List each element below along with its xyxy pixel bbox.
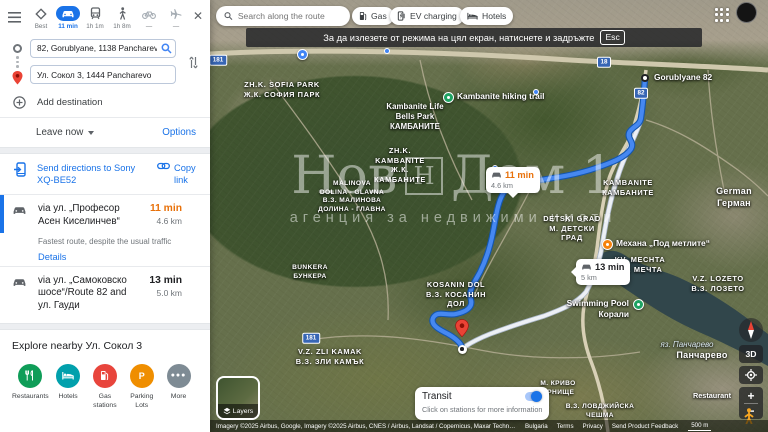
driving-time-label: 11 min xyxy=(58,23,78,30)
search-icon[interactable] xyxy=(161,41,172,59)
travel-mode-bar: Best 11 min 1h 1m 1h 8m — xyxy=(0,0,210,30)
send-to-phone-icon xyxy=(13,162,27,177)
poi-blue[interactable] xyxy=(297,49,308,60)
options-button[interactable]: Options xyxy=(162,127,196,138)
chevron-down-icon xyxy=(88,131,94,135)
my-location-button[interactable] xyxy=(739,366,763,384)
category-hotels[interactable]: Hotels xyxy=(51,364,86,411)
car-icon xyxy=(581,263,592,271)
walking-time-label: 1h 8m xyxy=(113,23,131,30)
route-time-0: 11 min xyxy=(142,203,182,214)
terms-link[interactable]: Terms xyxy=(557,423,574,430)
category-more[interactable]: ●●● More xyxy=(161,364,196,411)
bed-icon xyxy=(56,364,80,388)
transit-stop xyxy=(533,89,539,95)
gas-pump-icon xyxy=(93,364,117,388)
origin-dot-icon xyxy=(13,44,22,53)
transit-stop xyxy=(384,48,390,54)
copy-link-button[interactable]: Copy link xyxy=(157,162,200,186)
swap-endpoints-icon[interactable] xyxy=(189,56,198,74)
compass-needle-icon xyxy=(745,321,757,339)
ev-charging-filter-chip[interactable]: EV charging xyxy=(390,7,464,25)
walk-icon xyxy=(118,6,127,21)
destination-pin-icon xyxy=(12,71,23,85)
route-badge-time-1: 13 min xyxy=(595,262,624,272)
category-restaurants[interactable]: Restaurants xyxy=(12,364,49,411)
endpoints-rail xyxy=(12,42,24,90)
category-label: Restaurants xyxy=(12,393,49,402)
car-icon xyxy=(0,203,38,228)
chip-label: Hotels xyxy=(482,11,506,21)
transit-time-label: 1h 1m xyxy=(86,23,104,30)
search-icon xyxy=(224,11,233,21)
category-gas-stations[interactable]: Gas stations xyxy=(87,364,122,411)
category-label: Gas stations xyxy=(87,393,122,411)
route-via-label: via ул. „Професор Асен Киселинчев“ xyxy=(38,203,142,228)
route-endpoints xyxy=(0,30,210,90)
category-label: More xyxy=(171,393,187,402)
category-label: Hotels xyxy=(58,393,77,402)
route-via-label: via ул. „Самоковско шосе“/Route 82 and у… xyxy=(38,275,142,313)
gas-pump-icon xyxy=(359,11,367,21)
map-vector-layer xyxy=(210,0,768,432)
cycling-time-label: — xyxy=(146,23,152,30)
tab-walking-mode[interactable]: 1h 8m xyxy=(109,6,135,30)
destination-pin[interactable] xyxy=(455,319,469,343)
map-attribution-bar: Imagery ©2025 Airbus, Google, Imagery ©2… xyxy=(210,420,768,432)
bed-icon xyxy=(467,12,478,20)
google-apps-icon[interactable] xyxy=(715,8,729,22)
destination-input[interactable] xyxy=(30,65,176,84)
search-along-route-input[interactable] xyxy=(238,11,342,21)
transit-card: Transit Click on stations for more infor… xyxy=(415,387,549,420)
more-dots-icon: ●●● xyxy=(167,364,191,388)
toast-text: За да излезете от режима на цял екран, н… xyxy=(323,33,594,43)
layers-button[interactable]: Layers xyxy=(216,376,260,420)
route-badge-distance: 4.6 km xyxy=(491,181,534,190)
departure-options-row: Leave now Options xyxy=(0,118,210,147)
tab-cycling-mode[interactable]: — xyxy=(136,6,162,30)
scale-bar: 500 m xyxy=(688,422,711,431)
best-mode-icon xyxy=(35,6,47,21)
leave-now-dropdown[interactable]: Leave now xyxy=(36,127,94,138)
plane-icon xyxy=(170,6,182,21)
ring-road xyxy=(210,51,768,70)
route-option-2[interactable]: via ул. „Самоковско шосе“/Route 82 and у… xyxy=(0,267,210,323)
selected-route-badge[interactable]: 11 min 4.6 km xyxy=(486,167,540,193)
add-destination-button[interactable]: Add destination xyxy=(0,90,210,117)
best-mode-label: Best xyxy=(35,23,48,30)
section-divider xyxy=(0,323,210,330)
car-icon xyxy=(56,6,80,21)
link-icon xyxy=(157,162,170,170)
send-directions-row: Send directions to Sony XQ-BE52 Copy lin… xyxy=(0,154,210,194)
route-dots-icon xyxy=(16,56,24,68)
road-shield: 181 xyxy=(302,333,320,344)
parking-icon: P xyxy=(130,364,154,388)
3d-toggle-button[interactable]: 3D xyxy=(739,345,763,363)
primary-route-path[interactable] xyxy=(432,78,645,347)
origin-input[interactable] xyxy=(30,39,176,58)
zoom-in-button[interactable]: + xyxy=(747,389,754,403)
hamburger-menu-icon[interactable] xyxy=(8,10,21,28)
car-icon xyxy=(0,275,38,313)
category-parking[interactable]: P Parking Lots xyxy=(124,364,159,411)
tab-flight-mode[interactable]: — xyxy=(163,6,189,30)
imagery-credits: Imagery ©2025 Airbus, Google, Imagery ©2… xyxy=(216,423,516,430)
account-avatar[interactable] xyxy=(736,2,757,23)
route-details-link[interactable]: Details xyxy=(38,252,210,262)
map-canvas[interactable]: Нов Н Дом 1 агенция за недвижими имоти Z… xyxy=(210,0,768,432)
transit-toggle[interactable] xyxy=(525,392,542,401)
road-shield: 82 xyxy=(634,88,648,99)
category-buttons: Restaurants Hotels Gas stations P Parkin… xyxy=(12,364,198,411)
esc-key: Esc xyxy=(600,30,624,45)
poi-hiking-trail[interactable] xyxy=(443,92,454,103)
flight-time-label: — xyxy=(173,23,179,30)
add-destination-label: Add destination xyxy=(37,97,103,108)
route-start-marker xyxy=(641,74,649,82)
directions-panel: Best 11 min 1h 1m 1h 8m — xyxy=(0,0,210,432)
bicycle-icon xyxy=(142,6,156,21)
fork-knife-icon xyxy=(18,364,42,388)
route-note: Fastest route, despite the usual traffic xyxy=(38,237,210,246)
chip-label: EV charging xyxy=(410,11,457,21)
target-icon xyxy=(745,369,757,381)
fullscreen-exit-toast: За да излезете от режима на цял екран, н… xyxy=(246,28,702,47)
google-maps-directions-app: Best 11 min 1h 1m 1h 8m — xyxy=(0,0,768,432)
alternate-route-badge[interactable]: 13 min 5 km xyxy=(576,259,630,285)
chip-label: Gas xyxy=(371,11,387,21)
search-along-route[interactable] xyxy=(216,6,350,26)
explore-nearby-section: Explore nearby Ул. Сокол 3 Restaurants H… xyxy=(0,330,210,411)
plus-circle-icon xyxy=(13,96,26,109)
privacy-link[interactable]: Privacy xyxy=(583,423,603,430)
route-badge-distance: 5 km xyxy=(581,273,624,282)
car-icon xyxy=(491,171,502,179)
road-shield: 18 xyxy=(597,57,611,68)
category-label: Parking Lots xyxy=(124,393,159,411)
send-directions-button[interactable]: Send directions to Sony XQ-BE52 xyxy=(37,162,141,186)
copy-link-label: Copy link xyxy=(174,162,200,186)
tab-best-mode[interactable]: Best xyxy=(28,6,54,30)
road-shield: 181 xyxy=(210,55,227,66)
route-badge-time-0: 11 min xyxy=(505,170,534,180)
route-distance: 5.0 km xyxy=(142,288,182,298)
compass-control[interactable] xyxy=(739,318,763,342)
route-time-1: 13 min xyxy=(142,275,182,286)
tab-driving-mode[interactable]: 11 min xyxy=(55,6,81,30)
ev-charger-icon xyxy=(397,11,406,21)
layers-icon xyxy=(223,407,231,415)
hotels-filter-chip[interactable]: Hotels xyxy=(460,7,513,25)
transit-icon xyxy=(90,6,101,21)
feedback-link[interactable]: Send Product Feedback xyxy=(612,423,678,430)
close-directions-icon[interactable]: ✕ xyxy=(193,9,203,23)
poi-swimming-pool[interactable] xyxy=(633,299,644,310)
layers-label: Layers xyxy=(233,408,253,415)
route-distance: 4.6 km xyxy=(142,216,182,226)
poi-restaurant[interactable] xyxy=(602,239,613,250)
explore-nearby-title: Explore nearby Ул. Сокол 3 xyxy=(12,340,198,352)
tab-transit-mode[interactable]: 1h 1m xyxy=(82,6,108,30)
route-option-1[interactable]: via ул. „Професор Асен Киселинчев“ 11 mi… xyxy=(0,195,210,232)
gas-filter-chip[interactable]: Gas xyxy=(352,7,394,25)
attribution-country: Bulgaria xyxy=(525,423,548,430)
section-divider xyxy=(0,147,210,154)
transit-subtitle: Click on stations for more information xyxy=(422,405,542,414)
destination-point xyxy=(458,345,467,354)
transit-title: Transit xyxy=(422,391,452,402)
